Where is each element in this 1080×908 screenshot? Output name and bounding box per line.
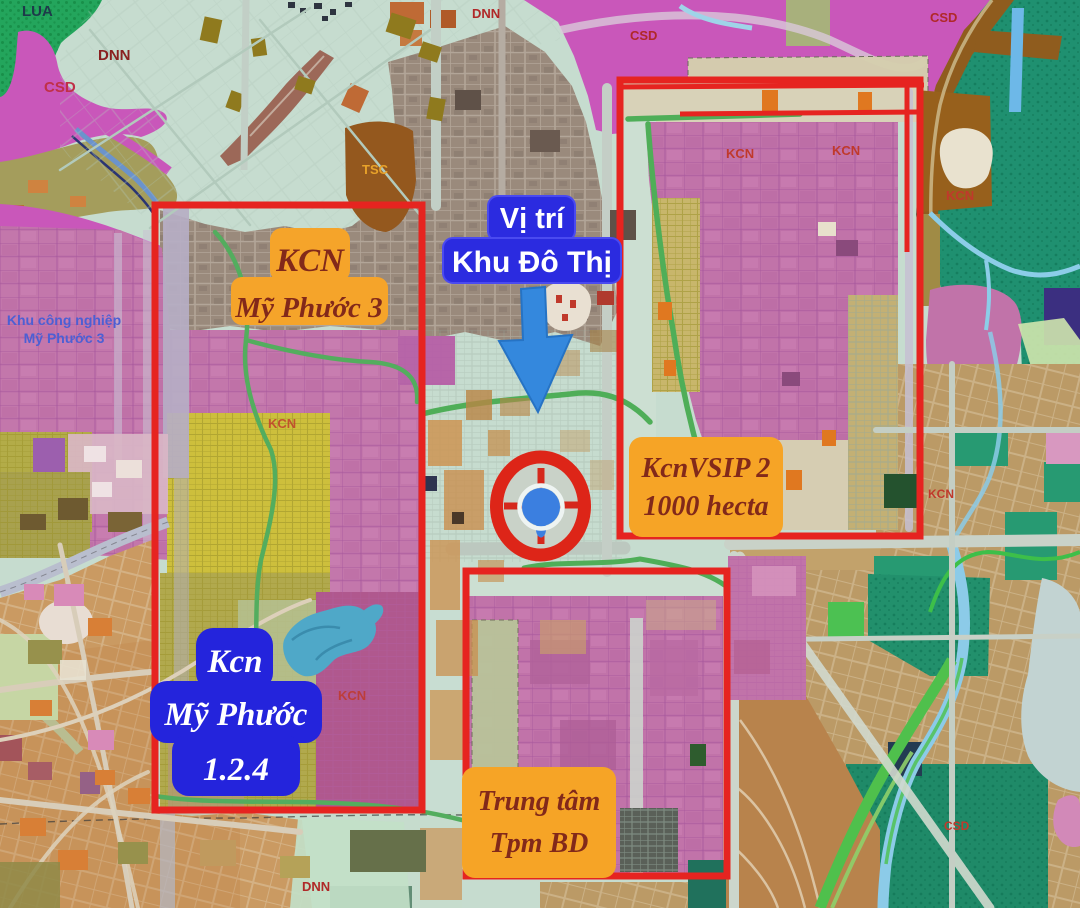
svg-text:DNN: DNN (472, 6, 500, 21)
svg-text:Mỹ Phước: Mỹ Phước (164, 697, 308, 733)
svg-text:Kcn: Kcn (206, 644, 262, 680)
svg-text:LUA: LUA (22, 3, 53, 20)
svg-text:1000 hecta: 1000 hecta (643, 491, 768, 522)
svg-text:Mỹ Phước 3: Mỹ Phước 3 (24, 330, 105, 346)
svg-text:Trung tâm: Trung tâm (478, 786, 601, 817)
svg-text:KCN: KCN (338, 688, 366, 703)
svg-text:KCN: KCN (928, 487, 954, 501)
svg-text:Tpm BD: Tpm BD (490, 828, 589, 859)
svg-text:KCN: KCN (832, 143, 860, 158)
svg-text:KcnVSIP 2: KcnVSIP 2 (641, 453, 771, 484)
svg-text:CSD: CSD (630, 28, 657, 43)
svg-text:Khu Đô Thị: Khu Đô Thị (452, 246, 612, 279)
svg-text:DNN: DNN (302, 879, 330, 894)
svg-text:1.2.4: 1.2.4 (203, 752, 269, 788)
svg-text:CSD: CSD (44, 79, 76, 96)
svg-text:CSD: CSD (930, 10, 957, 25)
svg-text:KCN: KCN (275, 243, 345, 279)
svg-text:Vị trí: Vị trí (500, 203, 565, 235)
svg-text:CSD: CSD (944, 819, 970, 833)
svg-text:Mỹ Phước 3: Mỹ Phước 3 (234, 292, 382, 324)
svg-text:DNN: DNN (98, 47, 131, 64)
svg-text:KCN: KCN (268, 416, 296, 431)
svg-text:KCN: KCN (946, 188, 974, 203)
svg-text:TSC: TSC (362, 162, 389, 177)
svg-text:Khu công nghiệp: Khu công nghiệp (7, 312, 121, 328)
svg-text:KCN: KCN (726, 146, 754, 161)
